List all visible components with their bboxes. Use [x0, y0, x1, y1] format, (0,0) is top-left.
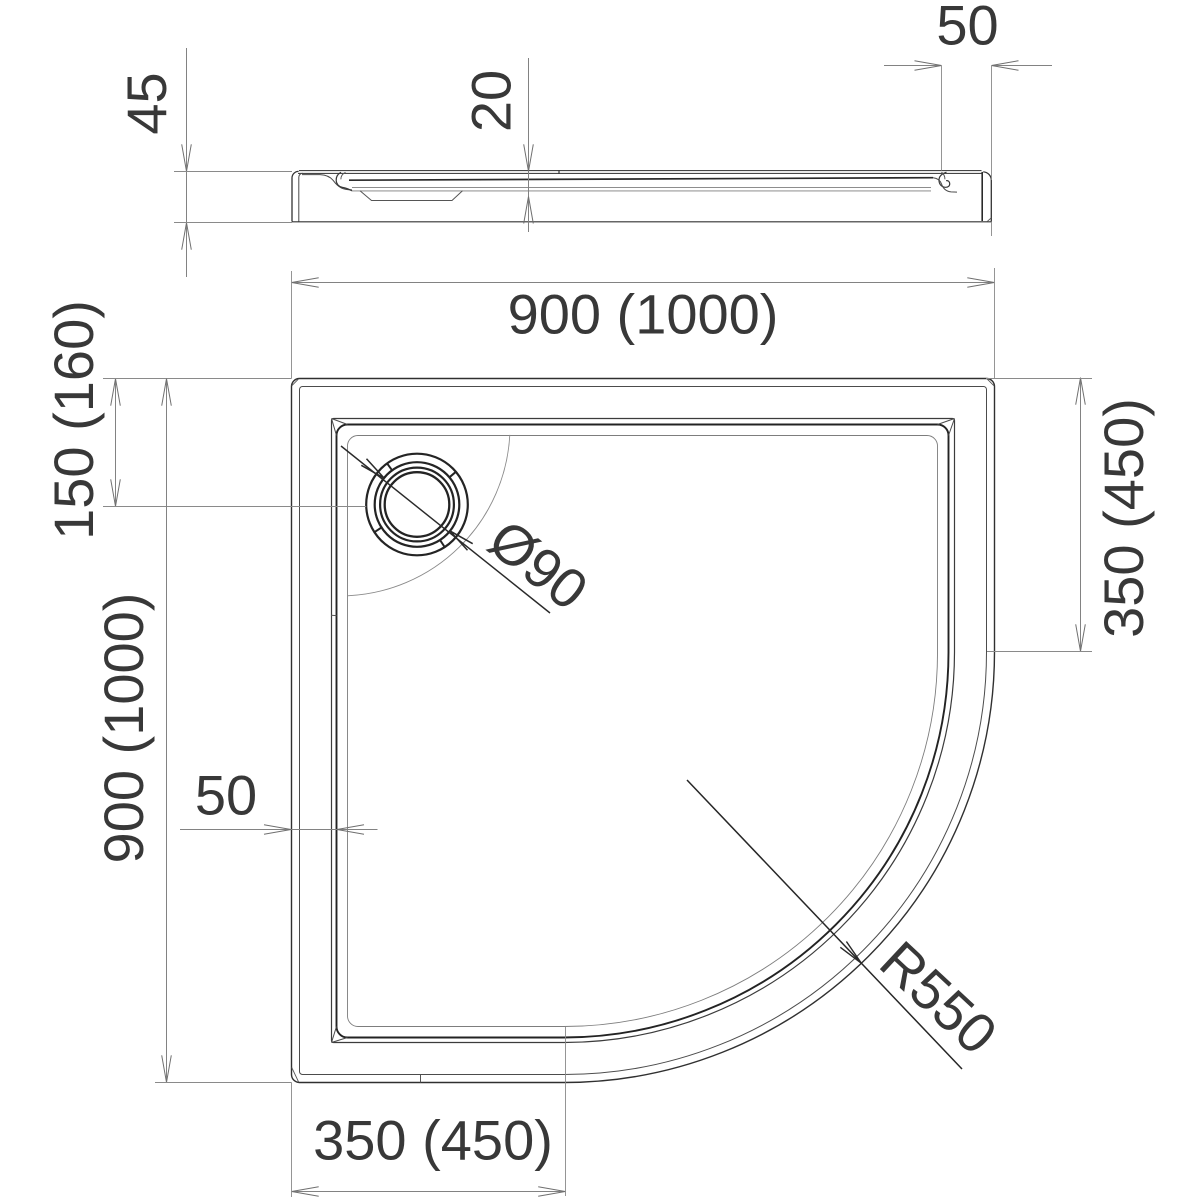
svg-text:20: 20 [460, 70, 523, 132]
svg-text:50: 50 [936, 0, 998, 57]
svg-text:45: 45 [115, 72, 178, 134]
svg-text:350 (450): 350 (450) [313, 1109, 553, 1172]
svg-text:150 (160): 150 (160) [42, 300, 105, 540]
svg-text:50: 50 [195, 764, 257, 827]
svg-text:900 (1000): 900 (1000) [508, 283, 779, 346]
svg-text:900 (1000): 900 (1000) [92, 593, 155, 864]
svg-text:350 (450): 350 (450) [1092, 398, 1155, 638]
